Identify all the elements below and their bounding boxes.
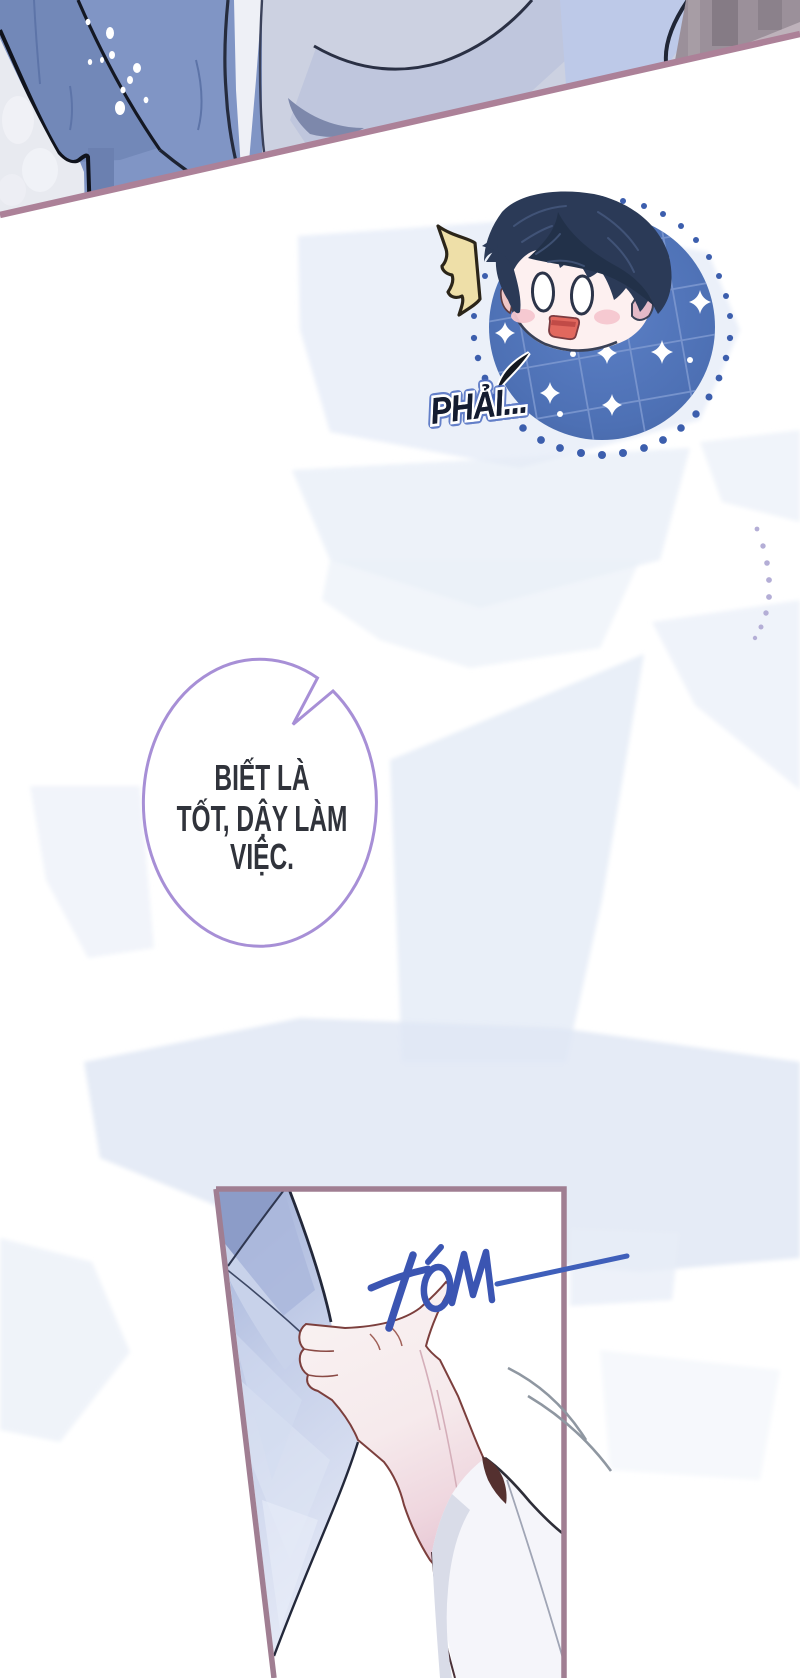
svg-text:VIỆC.: VIỆC. (230, 835, 294, 877)
svg-text:TỐT, DẬY LÀM: TỐT, DẬY LÀM (177, 797, 348, 839)
svg-text:BIẾT LÀ: BIẾT LÀ (214, 757, 309, 798)
